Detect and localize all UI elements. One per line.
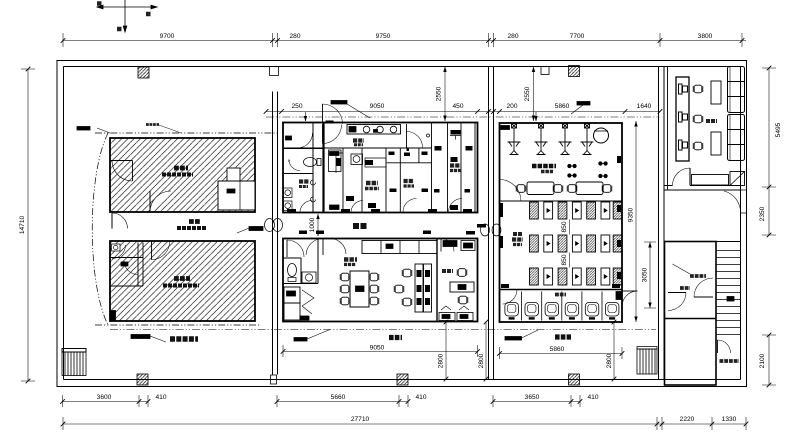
svg-text:280: 280 <box>507 33 518 40</box>
svg-text:1330: 1330 <box>722 416 737 423</box>
svg-text:410: 410 <box>415 394 426 401</box>
svg-text:5495: 5495 <box>775 122 782 137</box>
svg-text:2100: 2100 <box>759 353 766 368</box>
svg-text:2220: 2220 <box>680 416 695 423</box>
svg-text:3650: 3650 <box>525 394 540 401</box>
svg-text:9750: 9750 <box>376 33 391 40</box>
svg-text:850: 850 <box>561 221 568 232</box>
svg-text:450: 450 <box>452 103 463 110</box>
svg-text:5860: 5860 <box>555 103 570 110</box>
svg-text:250: 250 <box>291 103 302 110</box>
svg-text:9700: 9700 <box>160 33 175 40</box>
svg-text:850: 850 <box>561 254 568 265</box>
svg-text:5860: 5860 <box>550 346 565 353</box>
svg-text:27710: 27710 <box>351 416 370 423</box>
svg-text:5660: 5660 <box>331 394 346 401</box>
svg-text:280: 280 <box>289 33 300 40</box>
svg-text:9350: 9350 <box>628 207 635 222</box>
svg-text:200: 200 <box>506 103 517 110</box>
svg-text:9050: 9050 <box>370 103 385 110</box>
svg-text:2550: 2550 <box>436 86 443 101</box>
svg-text:2550: 2550 <box>524 86 531 101</box>
svg-text:3800: 3800 <box>698 33 713 40</box>
svg-text:3050: 3050 <box>642 267 649 282</box>
svg-text:2350: 2350 <box>759 206 766 221</box>
svg-text:7700: 7700 <box>570 33 585 40</box>
svg-text:2800: 2800 <box>438 353 445 368</box>
svg-text:2800: 2800 <box>606 353 613 368</box>
svg-text:410: 410 <box>155 394 166 401</box>
svg-text:410: 410 <box>587 394 598 401</box>
svg-text:1640: 1640 <box>637 103 652 110</box>
svg-text:1000: 1000 <box>309 217 316 232</box>
svg-text:14710: 14710 <box>19 216 26 235</box>
svg-text:2800: 2800 <box>478 353 485 368</box>
svg-text:3600: 3600 <box>97 394 112 401</box>
svg-text:9050: 9050 <box>370 345 385 352</box>
